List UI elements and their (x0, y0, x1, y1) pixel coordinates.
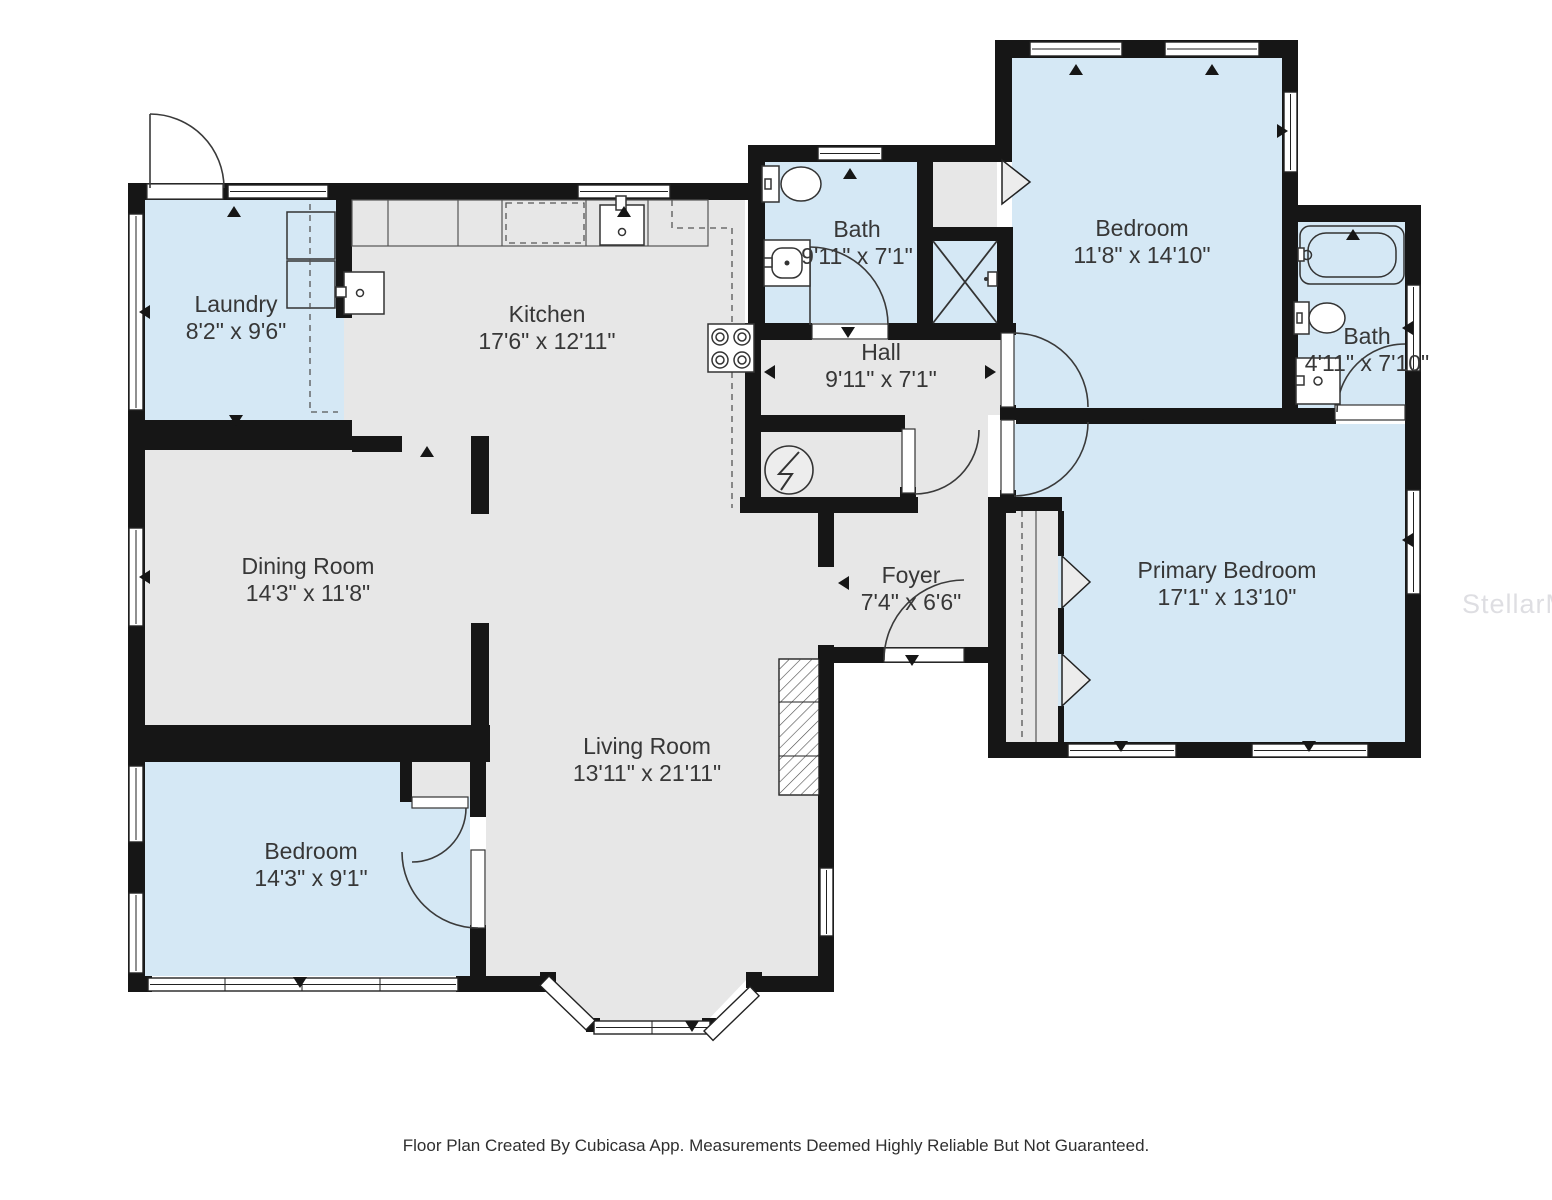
stove-icon (708, 324, 754, 372)
toilet-icon (762, 166, 821, 202)
room-hall-bath-name: Bath (833, 216, 880, 242)
room-dining-dimensions: 14'3" x 11'8" (246, 580, 370, 606)
watermark: StellarMLS (1462, 589, 1552, 619)
room-bedroom-bottom-name: Bedroom (264, 838, 357, 864)
room-foyer-name: Foyer (882, 562, 941, 588)
room-living-dimensions: 13'11" x 21'11" (573, 760, 721, 786)
room-bedroom-bottom-dimensions: 14'3" x 9'1" (254, 865, 367, 891)
linen-closet-floor (933, 162, 997, 227)
water-heater-icon (765, 446, 813, 494)
bedroom-bottom-closet-floor (412, 762, 470, 797)
floor-plan-canvas: Laundry 8'2" x 9'6" Kitchen 17'6" x 12'1… (0, 0, 1552, 1200)
door-icon (147, 114, 224, 199)
fireplace-icon (779, 659, 819, 795)
floor-plan-page: Laundry 8'2" x 9'6" Kitchen 17'6" x 12'1… (0, 0, 1552, 1200)
room-hall-dimensions: 9'11" x 7'1" (825, 366, 937, 392)
room-bedroom-top-name: Bedroom (1095, 215, 1188, 241)
room-primary-bedroom-name: Primary Bedroom (1138, 557, 1317, 583)
room-primary-bedroom-dimensions: 17'1" x 13'10" (1158, 584, 1297, 610)
footer-disclaimer: Floor Plan Created By Cubicasa App. Meas… (403, 1136, 1150, 1155)
room-laundry-dimensions: 8'2" x 9'6" (186, 318, 287, 344)
room-hall-bath-dimensions: 9'11" x 7'1" (801, 243, 913, 269)
room-dining-name: Dining Room (242, 553, 375, 579)
room-bedroom-top-dimensions: 11'8" x 14'10" (1073, 242, 1210, 268)
room-ensuite-bath-dimensions: 4'11" x 7'10" (1305, 350, 1429, 376)
room-hall-name: Hall (861, 339, 901, 365)
room-laundry-name: Laundry (194, 291, 278, 317)
toilet-icon (1294, 302, 1345, 334)
room-ensuite-bath-name: Bath (1343, 323, 1390, 349)
room-living-name: Living Room (583, 733, 711, 759)
room-foyer-dimensions: 7'4" x 6'6" (861, 589, 962, 615)
room-kitchen-name: Kitchen (509, 301, 586, 327)
primary-closet-floor (1006, 511, 1058, 742)
room-kitchen-dimensions: 17'6" x 12'11" (478, 328, 615, 354)
